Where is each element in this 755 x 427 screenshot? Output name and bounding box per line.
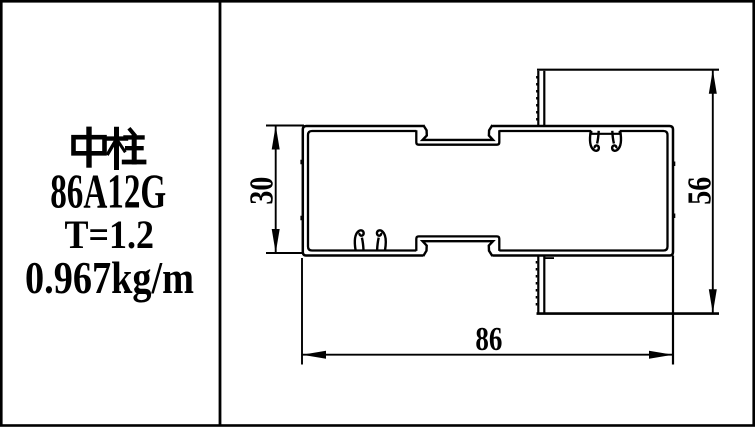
svg-text:86: 86 <box>475 321 502 358</box>
svg-text:0.967kg/m: 0.967kg/m <box>25 253 194 303</box>
svg-text:56: 56 <box>681 177 718 205</box>
svg-text:30: 30 <box>243 177 280 205</box>
svg-text:T=1.2: T=1.2 <box>65 212 155 257</box>
svg-text:86A12G: 86A12G <box>50 166 166 219</box>
